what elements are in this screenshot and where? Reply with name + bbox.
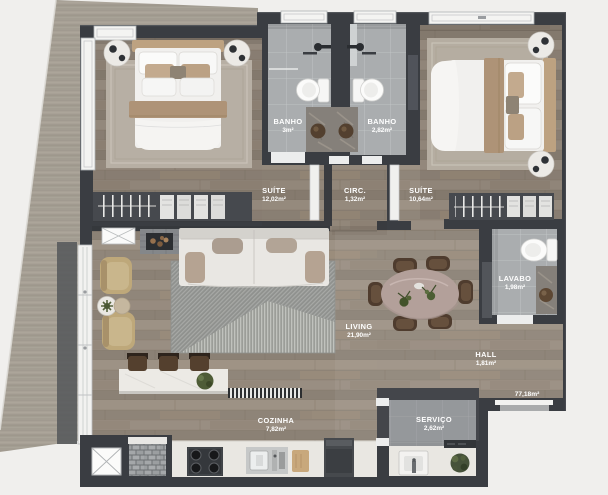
svg-text:LIVING: LIVING [345,322,372,331]
svg-text:21,90m²: 21,90m² [347,332,371,339]
svg-text:1,32m²: 1,32m² [345,196,365,203]
svg-text:1,81m²: 1,81m² [476,360,496,367]
svg-text:12,02m²: 12,02m² [262,196,286,203]
svg-text:1,98m²: 1,98m² [505,284,525,291]
svg-text:LAVABO: LAVABO [499,274,532,283]
svg-text:HALL: HALL [475,350,496,359]
svg-text:SUÍTE: SUÍTE [409,186,433,195]
svg-text:10,64m²: 10,64m² [409,196,433,203]
svg-text:SUÍTE: SUÍTE [262,186,286,195]
svg-text:77,18m²: 77,18m² [515,391,540,398]
svg-text:3m²: 3m² [282,127,293,134]
svg-text:2,62m²: 2,62m² [424,425,444,432]
svg-text:COZINHA: COZINHA [258,416,295,425]
svg-text:BANHO: BANHO [273,117,302,126]
svg-text:2,82m²: 2,82m² [372,127,392,134]
svg-text:CIRC.: CIRC. [344,186,366,195]
svg-text:SERVIÇO: SERVIÇO [416,415,452,424]
svg-text:7,82m²: 7,82m² [266,426,286,433]
svg-text:BANHO: BANHO [367,117,396,126]
